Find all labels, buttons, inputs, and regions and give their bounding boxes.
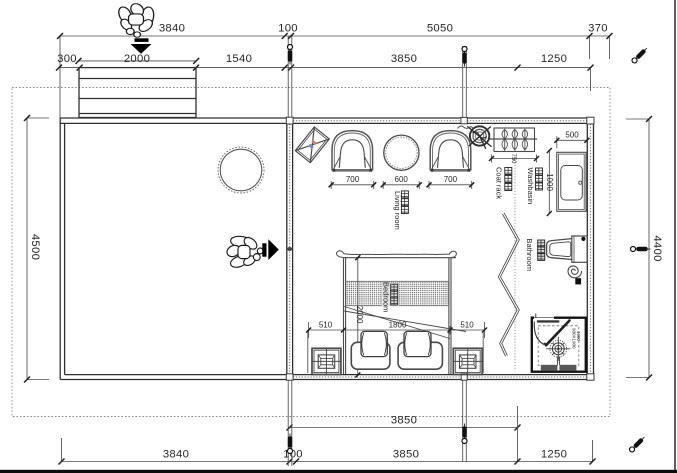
- svg-text:1800: 1800: [389, 320, 407, 329]
- svg-text:300: 300: [57, 53, 77, 65]
- svg-text:100: 100: [278, 23, 298, 35]
- svg-text:Bedroom: Bedroom: [382, 282, 391, 312]
- svg-text:510: 510: [319, 320, 333, 329]
- svg-text:Coat rack: Coat rack: [495, 167, 504, 199]
- svg-text:1540: 1540: [226, 53, 252, 65]
- svg-text:Living room: Living room: [393, 191, 402, 230]
- svg-text:900X1900: 900X1900: [572, 328, 577, 349]
- svg-text:3840: 3840: [163, 449, 189, 461]
- svg-text:700: 700: [346, 175, 360, 184]
- svg-text:4500: 4500: [29, 234, 41, 260]
- svg-text:4400: 4400: [651, 235, 663, 261]
- svg-text:5050: 5050: [427, 23, 453, 35]
- svg-text:3850: 3850: [391, 53, 417, 65]
- svg-text:370: 370: [588, 23, 608, 35]
- svg-text:2000: 2000: [124, 53, 150, 65]
- svg-text:500: 500: [565, 131, 579, 140]
- svg-text:3840: 3840: [159, 23, 185, 35]
- svg-text:1250: 1250: [541, 53, 567, 65]
- svg-text:700: 700: [444, 175, 458, 184]
- svg-text:3850: 3850: [393, 449, 419, 461]
- svg-text:1250: 1250: [541, 449, 567, 461]
- svg-text:510: 510: [460, 320, 474, 329]
- svg-text:1900: 1900: [576, 331, 581, 342]
- svg-text:1000: 1000: [545, 173, 554, 191]
- svg-text:Bathroom: Bathroom: [525, 239, 534, 272]
- svg-text:3850: 3850: [391, 415, 417, 427]
- svg-text:600: 600: [395, 175, 409, 184]
- svg-text:2000: 2000: [355, 306, 364, 324]
- svg-text:Washbasin: Washbasin: [526, 168, 535, 205]
